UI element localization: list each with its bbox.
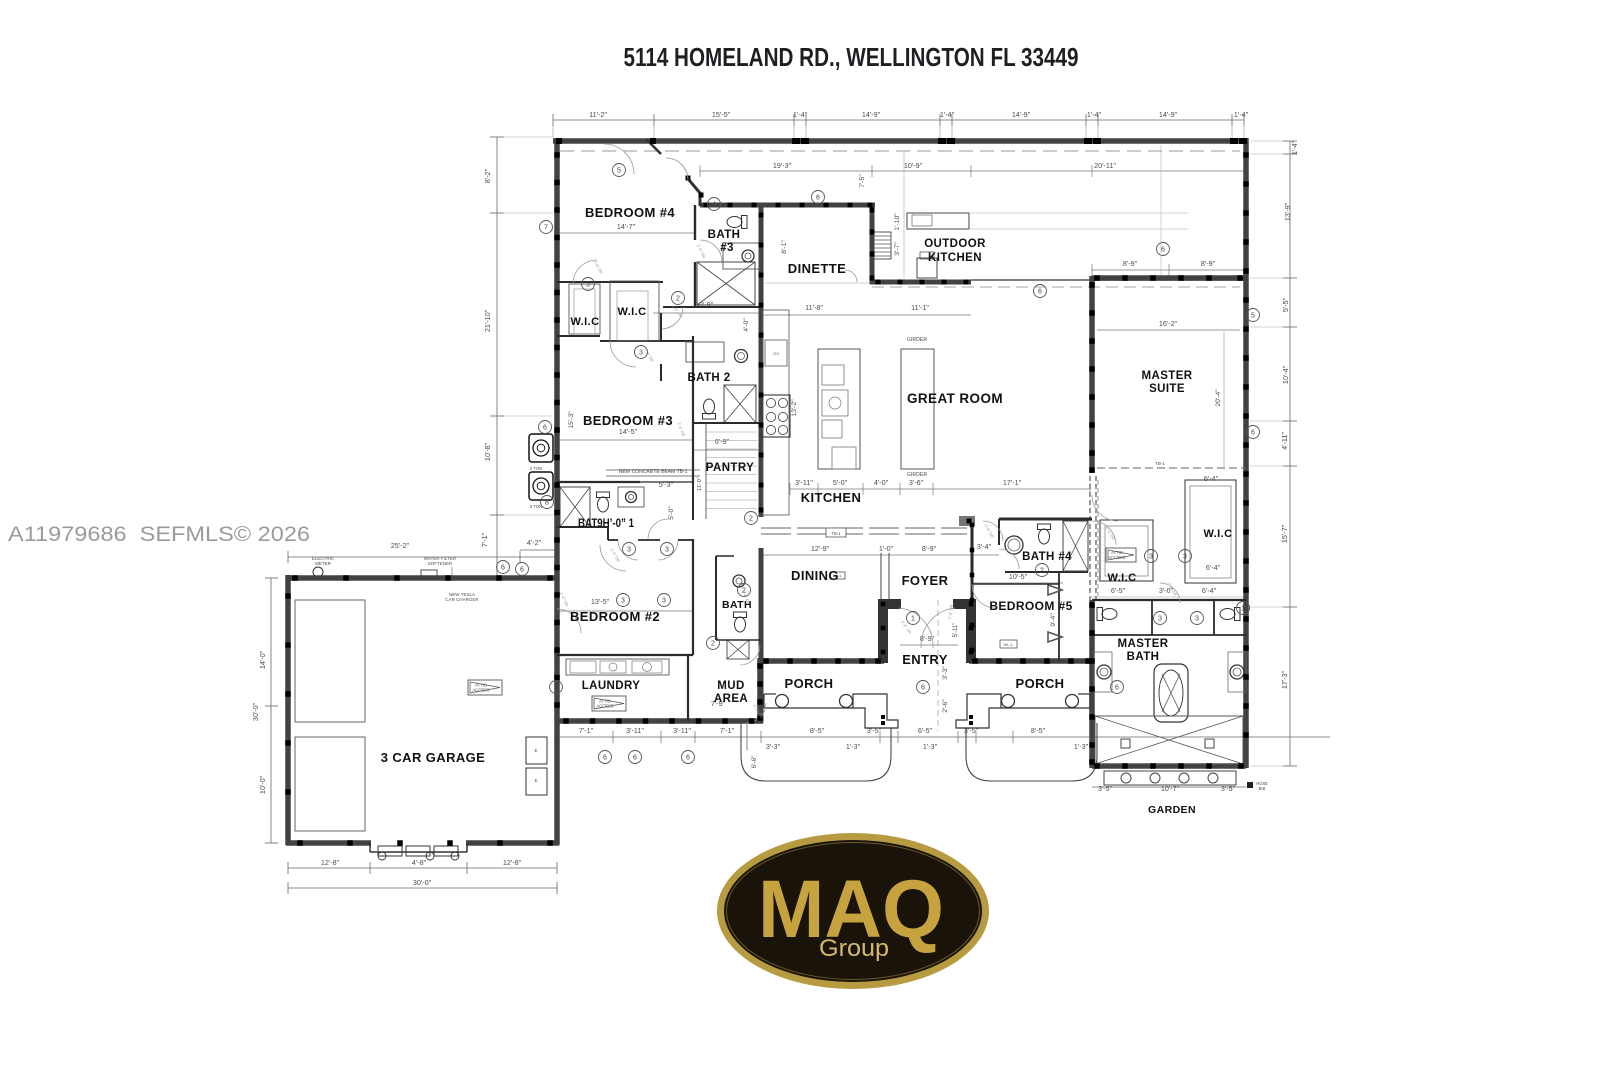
svg-text:5: 5 [1251,312,1255,319]
svg-text:11'-0": 11'-0" [697,477,703,491]
svg-text:4'-0": 4'-0" [743,318,750,332]
svg-text:14'-5": 14'-5" [619,427,638,436]
svg-text:4'-8": 4'-8" [412,858,427,867]
svg-text:20'-11": 20'-11" [1094,161,1116,170]
svg-text:ACCESS: ACCESS [1108,555,1125,560]
svg-text:1'-4": 1'-4" [1087,110,1102,119]
svg-text:8'-5": 8'-5" [810,726,825,735]
svg-text:BIB: BIB [1259,786,1266,791]
svg-text:6: 6 [501,564,505,571]
svg-text:KITCHEN: KITCHEN [928,252,982,264]
svg-text:#3: #3 [720,242,734,254]
svg-text:2'-6": 2'-6" [942,699,949,713]
svg-text:14'-9": 14'-9" [862,110,881,119]
svg-text:6'-4": 6'-4" [1202,586,1217,595]
svg-text:OUTDOOR: OUTDOOR [924,238,986,250]
svg-text:DINING: DINING [791,568,839,583]
svg-text:3: 3 [586,281,590,288]
svg-text:1: 1 [1241,605,1245,612]
svg-text:BAT9H’-0” 1: BAT9H’-0” 1 [578,518,635,530]
svg-text:2 TON: 2 TON [530,504,542,509]
svg-text:5'-11": 5'-11" [953,623,959,638]
svg-text:11'-8": 11'-8" [805,303,823,312]
svg-text:W.I.C: W.I.C [618,306,647,318]
svg-text:MUD: MUD [717,680,744,692]
svg-text:16'-2": 16'-2" [1159,319,1178,328]
svg-text:4'-2": 4'-2" [527,538,542,547]
svg-text:8'-9": 8'-9" [1123,259,1138,268]
svg-text:E: E [535,748,538,753]
svg-text:6'-5": 6'-5" [1111,586,1126,595]
svg-text:14'-9": 14'-9" [1012,110,1031,119]
svg-text:14'-0": 14'-0" [258,650,267,669]
svg-text:6: 6 [816,194,820,201]
svg-text:3'-3": 3'-3" [942,666,949,680]
svg-text:3: 3 [1195,615,1199,622]
svg-text:2 TON: 2 TON [530,466,542,471]
svg-text:MASTER: MASTER [1118,638,1169,650]
svg-text:30'-0": 30'-0" [413,878,432,887]
svg-text:1: 1 [911,615,915,622]
svg-text:13'-9": 13'-9" [1283,202,1292,221]
svg-text:8'-9": 8'-9" [922,544,937,553]
svg-text:2: 2 [676,295,680,302]
svg-text:BEDROOM #2: BEDROOM #2 [570,609,660,624]
svg-text:AREA: AREA [714,693,748,705]
svg-text:TB-1: TB-1 [1155,461,1165,466]
svg-text:12'-8": 12'-8" [503,858,522,867]
svg-text:11'-1": 11'-1" [911,303,929,312]
svg-text:BEDROOM #3: BEDROOM #3 [583,413,673,428]
svg-text:METER: METER [315,561,332,566]
svg-text:BEDROOM #5: BEDROOM #5 [989,599,1072,613]
svg-text:3: 3 [627,546,631,553]
svg-text:3: 3 [665,546,669,553]
svg-text:5114 HOMELAND RD., WELLINGTON: 5114 HOMELAND RD., WELLINGTON FL 33449 [624,42,1079,72]
svg-text:1'-4": 1'-4" [793,110,808,119]
svg-text:SUITE: SUITE [1149,383,1185,395]
svg-text:GARDEN: GARDEN [1148,804,1196,816]
svg-text:10'-5": 10'-5" [1009,572,1028,581]
svg-text:3'-11": 3'-11" [795,478,813,487]
svg-text:3: 3 [621,597,625,604]
svg-text:GIRDER: GIRDER [907,472,927,478]
svg-text:1'-3": 1'-3" [1074,742,1089,751]
svg-text:A11979686 SEFMLS© 2026: A11979686 SEFMLS© 2026 [8,522,310,546]
svg-text:5'-0": 5'-0" [833,478,848,487]
svg-text:15'-3": 15'-3" [568,411,575,429]
svg-text:10'-4": 10'-4" [1281,365,1290,384]
svg-text:6: 6 [603,754,607,761]
svg-text:12'-8": 12'-8" [321,858,340,867]
svg-text:FOYER: FOYER [902,573,949,588]
svg-text:15'-7": 15'-7" [1280,524,1289,543]
svg-text:21'-10": 21'-10" [483,309,492,332]
svg-text:3: 3 [1149,553,1153,560]
svg-text:TB-1: TB-1 [831,531,841,536]
svg-text:11'-2": 11'-2" [589,110,607,119]
svg-text:6: 6 [1115,684,1119,691]
svg-text:19'-3": 19'-3" [773,161,792,170]
svg-text:4'-0": 4'-0" [874,478,889,487]
svg-text:Group: Group [819,935,889,962]
svg-text:OV: OV [773,351,779,356]
svg-text:8: 8 [545,499,549,506]
svg-text:ACCESS: ACCESS [596,703,613,708]
svg-text:BATH: BATH [722,599,752,611]
svg-text:2: 2 [1040,567,1044,574]
svg-text:7'-1": 7'-1" [480,532,489,547]
svg-text:BEDROOM #4: BEDROOM #4 [585,205,675,220]
svg-text:14'-7": 14'-7" [617,222,636,231]
svg-text:6: 6 [1251,429,1255,436]
svg-text:5'-0": 5'-0" [668,506,675,520]
svg-text:30'-0": 30'-0" [251,702,260,721]
svg-text:17'-3": 17'-3" [1280,670,1289,689]
svg-text:GIRDER: GIRDER [907,337,927,343]
svg-text:25'-2": 25'-2" [391,541,410,550]
svg-text:BATH #4: BATH #4 [1022,551,1072,563]
svg-text:3'-11": 3'-11" [673,726,691,735]
svg-text:6'-4": 6'-4" [1206,563,1221,572]
svg-text:SOFTENER: SOFTENER [428,561,453,566]
svg-text:3'-7": 3'-7" [894,242,901,256]
svg-text:1'-10": 1'-10" [894,213,901,231]
svg-text:PORCH: PORCH [785,676,834,691]
svg-text:6: 6 [686,754,690,761]
svg-text:BATH: BATH [708,229,741,241]
svg-text:10'-0": 10'-0" [258,775,267,794]
svg-text:1'-0": 1'-0" [879,544,894,553]
svg-text:6'-4": 6'-4" [1204,474,1219,483]
svg-text:ENTRY: ENTRY [902,652,948,667]
svg-text:8'-2": 8'-2" [483,168,492,183]
svg-text:3: 3 [1158,615,1162,622]
svg-text:3'-11": 3'-11" [626,726,644,735]
svg-text:1'-4": 1'-4" [940,110,955,119]
svg-text:17'-1": 17'-1" [1003,478,1022,487]
svg-text:ACCESS: ACCESS [472,687,489,692]
svg-text:W.I.C: W.I.C [1204,528,1233,540]
svg-text:3'-6": 3'-6" [909,478,924,487]
svg-text:MASTER: MASTER [1142,370,1193,382]
svg-text:5'-5": 5'-5" [1281,297,1290,312]
svg-text:8'-9": 8'-9" [1201,259,1216,268]
svg-text:15'-5": 15'-5" [712,110,731,119]
svg-text:6: 6 [520,566,524,573]
svg-text:3'-4": 3'-4" [977,542,992,551]
svg-text:14'-9": 14'-9" [1159,110,1178,119]
svg-text:DINETTE: DINETTE [788,261,846,276]
svg-text:KITCHEN: KITCHEN [801,490,862,505]
svg-text:13'-2": 13'-2" [791,399,798,417]
svg-text:WL-1: WL-1 [1003,643,1012,647]
svg-text:3'-3": 3'-3" [766,742,781,751]
svg-text:8: 8 [554,684,558,691]
svg-text:3'-5": 3'-5" [867,726,882,735]
svg-text:BATH 2: BATH 2 [687,372,730,384]
svg-text:6: 6 [543,424,547,431]
svg-text:10'-9": 10'-9" [904,161,923,170]
svg-text:2: 2 [711,640,715,647]
svg-text:7'-5": 7'-5" [859,174,866,188]
svg-text:1'-3": 1'-3" [846,742,861,751]
svg-text:5'-3": 5'-3" [659,480,674,489]
svg-text:BATH: BATH [1127,651,1160,663]
svg-text:5: 5 [617,167,621,174]
svg-text:3: 3 [639,349,643,356]
svg-text:7'-1": 7'-1" [720,726,735,735]
svg-text:2: 2 [749,515,753,522]
svg-text:6: 6 [921,684,925,691]
svg-text:PORCH: PORCH [1016,676,1065,691]
svg-text:1'-4": 1'-4" [1234,110,1249,119]
svg-text:6'-6": 6'-6" [751,755,758,769]
svg-text:8'-1": 8'-1" [781,240,788,254]
svg-text:GREAT ROOM: GREAT ROOM [907,391,1003,406]
svg-text:LAUNDRY: LAUNDRY [582,680,641,692]
svg-text:6: 6 [633,754,637,761]
svg-text:7'-1": 7'-1" [579,726,594,735]
svg-text:CAR CHARGER: CAR CHARGER [445,597,479,602]
svg-text:6'-5": 6'-5" [918,726,933,735]
svg-text:2: 2 [742,587,746,594]
svg-text:12'-9": 12'-9" [811,544,830,553]
svg-text:6'-9": 6'-9" [715,437,730,446]
svg-text:PANTRY: PANTRY [706,462,754,474]
svg-text:6: 6 [1161,246,1165,253]
svg-text:W.I.C: W.I.C [571,316,600,328]
svg-text:9'-4": 9'-4" [1050,613,1057,627]
svg-text:3: 3 [662,597,666,604]
svg-text:E: E [535,778,538,783]
svg-text:4: 4 [712,201,716,208]
svg-text:8'-5": 8'-5" [1031,726,1046,735]
svg-text:6: 6 [1038,288,1042,295]
svg-text:1'-3": 1'-3" [923,742,938,751]
svg-text:20'-4": 20'-4" [1215,389,1222,407]
svg-text:13'-5": 13'-5" [591,597,610,606]
svg-text:3: 3 [1183,553,1187,560]
svg-text:7: 7 [544,224,548,231]
svg-text:4'-11": 4'-11" [1280,432,1289,450]
svg-text:W.I.C: W.I.C [1108,572,1137,584]
svg-text:1'-4": 1'-4" [1290,140,1299,155]
svg-text:3 CAR GARAGE: 3 CAR GARAGE [381,750,485,765]
svg-text:10'-8": 10'-8" [483,442,492,461]
